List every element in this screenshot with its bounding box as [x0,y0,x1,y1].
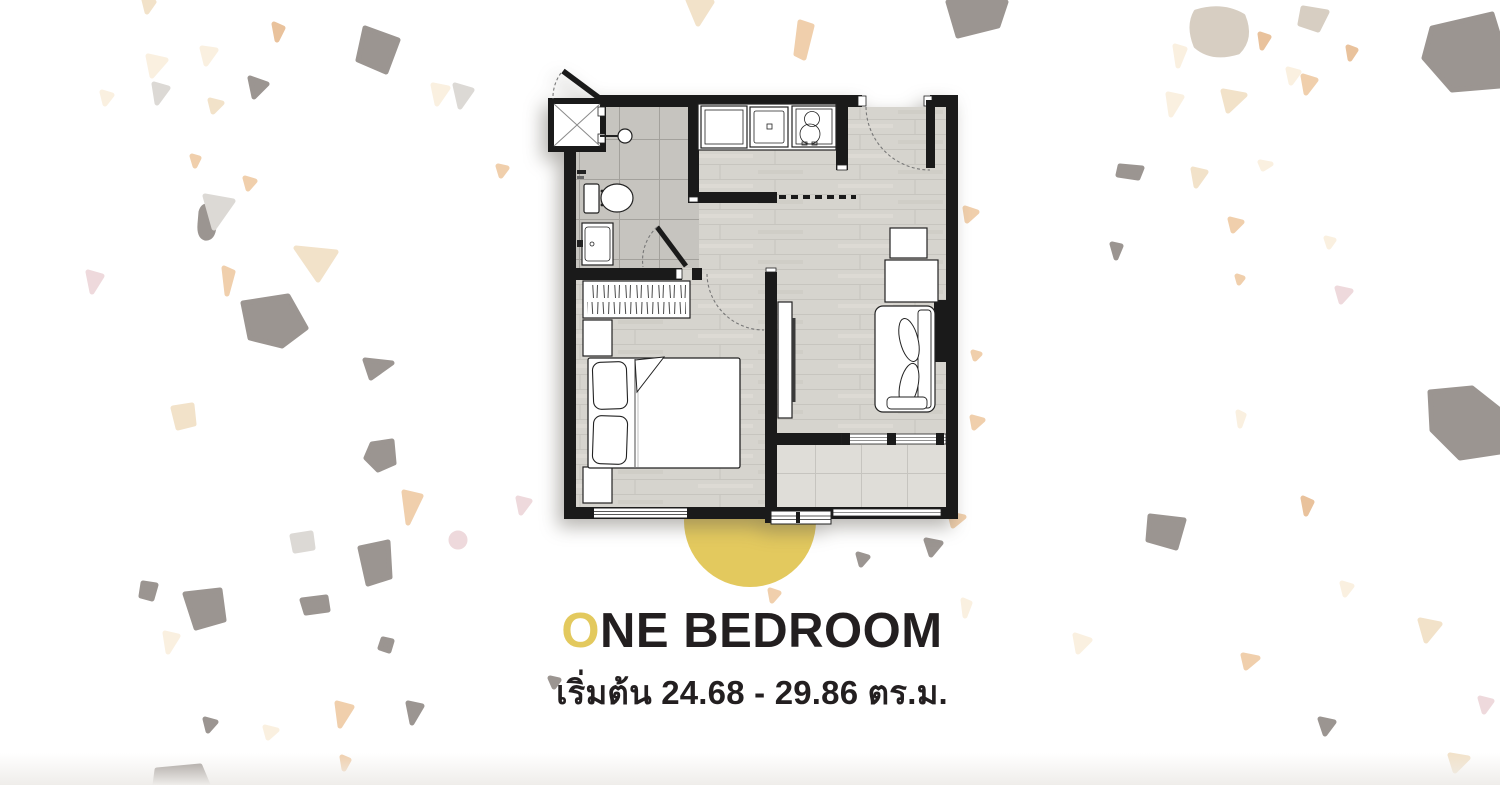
living-balcony-window-icon [842,433,946,445]
nightstand-icon [583,320,612,356]
plan-area-subtitle: เริ่มต้น 24.68 - 29.86 ตร.ม. [535,666,969,719]
tv-cabinet-icon [778,302,796,418]
title-rest: NE BEDROOM [600,604,943,658]
side-table-icon [890,228,927,258]
balcony-rail-window-icon [833,509,941,516]
balcony-tile-floor [777,445,946,507]
title-highlight: O [561,604,600,658]
bottom-fade [0,753,1500,785]
sofa-icon [875,306,935,412]
fridge-icon [701,106,747,148]
kitchen-sink-icon [750,107,788,147]
bedroom-top-wall [564,268,682,280]
shower-cabin-icon [551,71,605,149]
kitchen-stub-wall [836,95,848,170]
nightstand-icon [583,467,612,503]
plan-title: ONE BEDROOM [535,606,969,657]
double-bed-icon [588,357,740,468]
poster: ONE BEDROOM เริ่มต้น 24.68 - 29.86 ตร.ม. [0,0,1500,785]
bedroom-window-icon [590,507,691,519]
bathroom-right-wall [688,107,699,202]
caption: ONE BEDROOM เริ่มต้น 24.68 - 29.86 ตร.ม. [535,606,969,719]
kitchen-counter [698,104,836,150]
cabinet-icon [885,260,938,302]
terrazzo-lightgray-chips [154,84,472,551]
wardrobe-icon [583,281,690,318]
floor-plan-image [540,60,970,525]
kitchen-lower-wall [688,192,777,203]
stove-icon [792,106,836,147]
basin-icon [577,223,613,265]
bedroom-living-wall [765,272,777,445]
balcony-sliding-door-icon [771,511,831,524]
ac-unit-icon [934,300,958,362]
